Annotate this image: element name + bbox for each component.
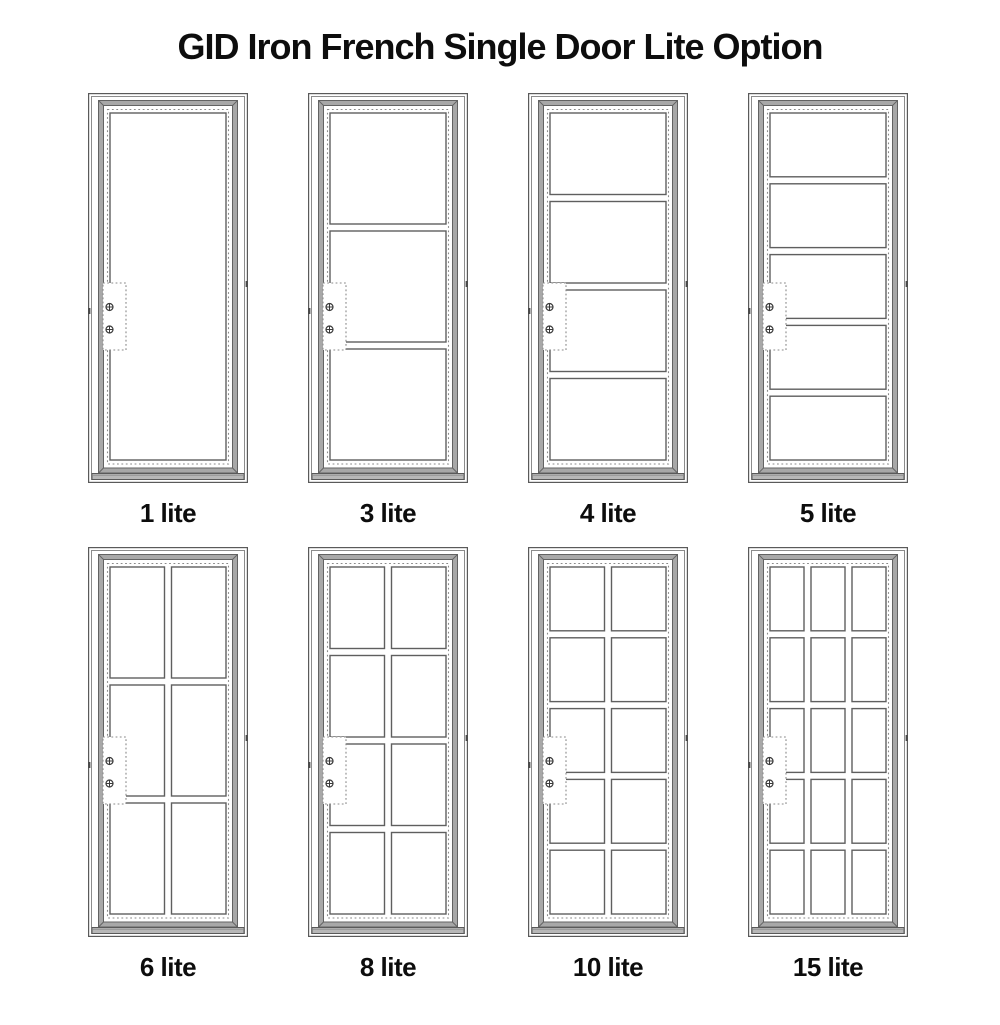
screw-crosshair-icon xyxy=(326,326,333,333)
hinge-tick-right xyxy=(246,281,248,287)
glass-lite xyxy=(612,567,667,631)
screw-crosshair-icon xyxy=(546,758,553,765)
glass-lite xyxy=(612,709,667,773)
glass-lite xyxy=(852,709,886,773)
glass-lite xyxy=(770,396,886,460)
glass-lite xyxy=(392,656,447,738)
glass-lite xyxy=(330,656,385,738)
glass-lite xyxy=(330,113,446,224)
glass-lite xyxy=(770,255,886,319)
page-title: GID Iron French Single Door Lite Option xyxy=(0,25,1000,69)
glass-lite xyxy=(770,325,886,389)
glass-lite xyxy=(330,231,446,342)
glass-lite xyxy=(172,567,227,678)
glass-lite xyxy=(550,290,666,372)
screw-crosshair-icon xyxy=(766,304,773,311)
hinge-tick-right xyxy=(246,735,248,741)
threshold-sill xyxy=(92,474,244,480)
door-figure-8-lite: 8 lite xyxy=(278,547,498,983)
hinge-tick-left xyxy=(88,762,90,768)
glass-lite xyxy=(811,709,845,773)
glass-lite xyxy=(550,113,666,195)
glass-lite xyxy=(852,567,886,631)
threshold-sill xyxy=(752,474,904,480)
glass-lite xyxy=(852,779,886,843)
glass-lite xyxy=(612,638,667,702)
lock-box xyxy=(323,737,346,804)
hinge-tick-left xyxy=(88,308,90,314)
screw-crosshair-icon xyxy=(766,780,773,787)
glass-lite xyxy=(110,803,165,914)
glass-lite xyxy=(392,567,447,649)
screw-crosshair-icon xyxy=(546,326,553,333)
hinge-tick-left xyxy=(528,308,530,314)
glass-lite xyxy=(550,850,605,914)
door-drawing xyxy=(748,93,908,483)
lock-box xyxy=(103,737,126,804)
hinge-tick-left xyxy=(308,308,310,314)
door-drawing xyxy=(748,547,908,937)
door-drawing xyxy=(528,547,688,937)
door-label: 5 lite xyxy=(800,497,856,529)
door-label: 6 lite xyxy=(140,951,196,983)
threshold-sill xyxy=(92,928,244,934)
glass-lite xyxy=(330,833,385,915)
glass-lite xyxy=(770,638,804,702)
lock-box xyxy=(543,737,566,804)
lite-options-diagram: GID Iron French Single Door Lite Option … xyxy=(0,25,1000,1025)
glass-lite xyxy=(811,567,845,631)
glass-lite xyxy=(550,567,605,631)
door-row-bottom: 6 lite8 lite10 lite15 lite xyxy=(58,547,938,983)
glass-lite xyxy=(550,379,666,461)
hinge-tick-right xyxy=(906,735,908,741)
door-figure-4-lite: 4 lite xyxy=(498,93,718,529)
screw-crosshair-icon xyxy=(546,304,553,311)
glass-lite xyxy=(770,567,804,631)
glass-lite xyxy=(811,779,845,843)
door-figure-15-lite: 15 lite xyxy=(718,547,938,983)
door-drawing xyxy=(308,547,468,937)
screw-crosshair-icon xyxy=(106,758,113,765)
hinge-tick-right xyxy=(466,281,468,287)
glass-lite xyxy=(852,638,886,702)
lock-box xyxy=(323,283,346,350)
door-label: 3 lite xyxy=(360,497,416,529)
door-figure-10-lite: 10 lite xyxy=(498,547,718,983)
glass-lite xyxy=(110,567,165,678)
threshold-sill xyxy=(312,474,464,480)
glass-lite xyxy=(550,638,605,702)
glass-lite xyxy=(330,349,446,460)
screw-crosshair-icon xyxy=(106,780,113,787)
lock-box xyxy=(103,283,126,350)
glass-lite xyxy=(770,850,804,914)
threshold-sill xyxy=(532,928,684,934)
hinge-tick-left xyxy=(528,762,530,768)
glass-lite xyxy=(811,850,845,914)
glass-lite xyxy=(852,850,886,914)
threshold-sill xyxy=(532,474,684,480)
screw-crosshair-icon xyxy=(106,304,113,311)
door-figure-5-lite: 5 lite xyxy=(718,93,938,529)
hinge-tick-left xyxy=(748,762,750,768)
door-figure-6-lite: 6 lite xyxy=(58,547,278,983)
glass-lite xyxy=(110,113,226,460)
threshold-sill xyxy=(312,928,464,934)
door-figure-1-lite: 1 lite xyxy=(58,93,278,529)
lock-box xyxy=(763,283,786,350)
screw-crosshair-icon xyxy=(106,326,113,333)
hinge-tick-right xyxy=(686,735,688,741)
hinge-tick-left xyxy=(308,762,310,768)
lock-box xyxy=(543,283,566,350)
glass-lite xyxy=(172,685,227,796)
door-row-top: 1 lite3 lite4 lite5 lite xyxy=(58,93,938,529)
glass-lite xyxy=(392,744,447,826)
door-label: 8 lite xyxy=(360,951,416,983)
glass-lite xyxy=(612,850,667,914)
hinge-tick-left xyxy=(748,308,750,314)
door-drawing xyxy=(528,93,688,483)
screw-crosshair-icon xyxy=(546,780,553,787)
screw-crosshair-icon xyxy=(766,326,773,333)
lock-box xyxy=(763,737,786,804)
door-label: 1 lite xyxy=(140,497,196,529)
screw-crosshair-icon xyxy=(326,304,333,311)
door-drawing xyxy=(308,93,468,483)
screw-crosshair-icon xyxy=(326,780,333,787)
threshold-sill xyxy=(752,928,904,934)
glass-lite xyxy=(612,779,667,843)
glass-lite xyxy=(550,202,666,284)
door-figure-3-lite: 3 lite xyxy=(278,93,498,529)
hinge-tick-right xyxy=(466,735,468,741)
glass-lite xyxy=(811,638,845,702)
hinge-tick-right xyxy=(686,281,688,287)
glass-lite xyxy=(770,113,886,177)
door-label: 10 lite xyxy=(573,951,643,983)
door-label: 15 lite xyxy=(793,951,863,983)
screw-crosshair-icon xyxy=(766,758,773,765)
glass-lite xyxy=(172,803,227,914)
glass-lite xyxy=(330,567,385,649)
door-label: 4 lite xyxy=(580,497,636,529)
hinge-tick-right xyxy=(906,281,908,287)
screw-crosshair-icon xyxy=(326,758,333,765)
glass-lite xyxy=(770,184,886,248)
door-drawing xyxy=(88,93,248,483)
door-drawing xyxy=(88,547,248,937)
glass-lite xyxy=(392,833,447,915)
